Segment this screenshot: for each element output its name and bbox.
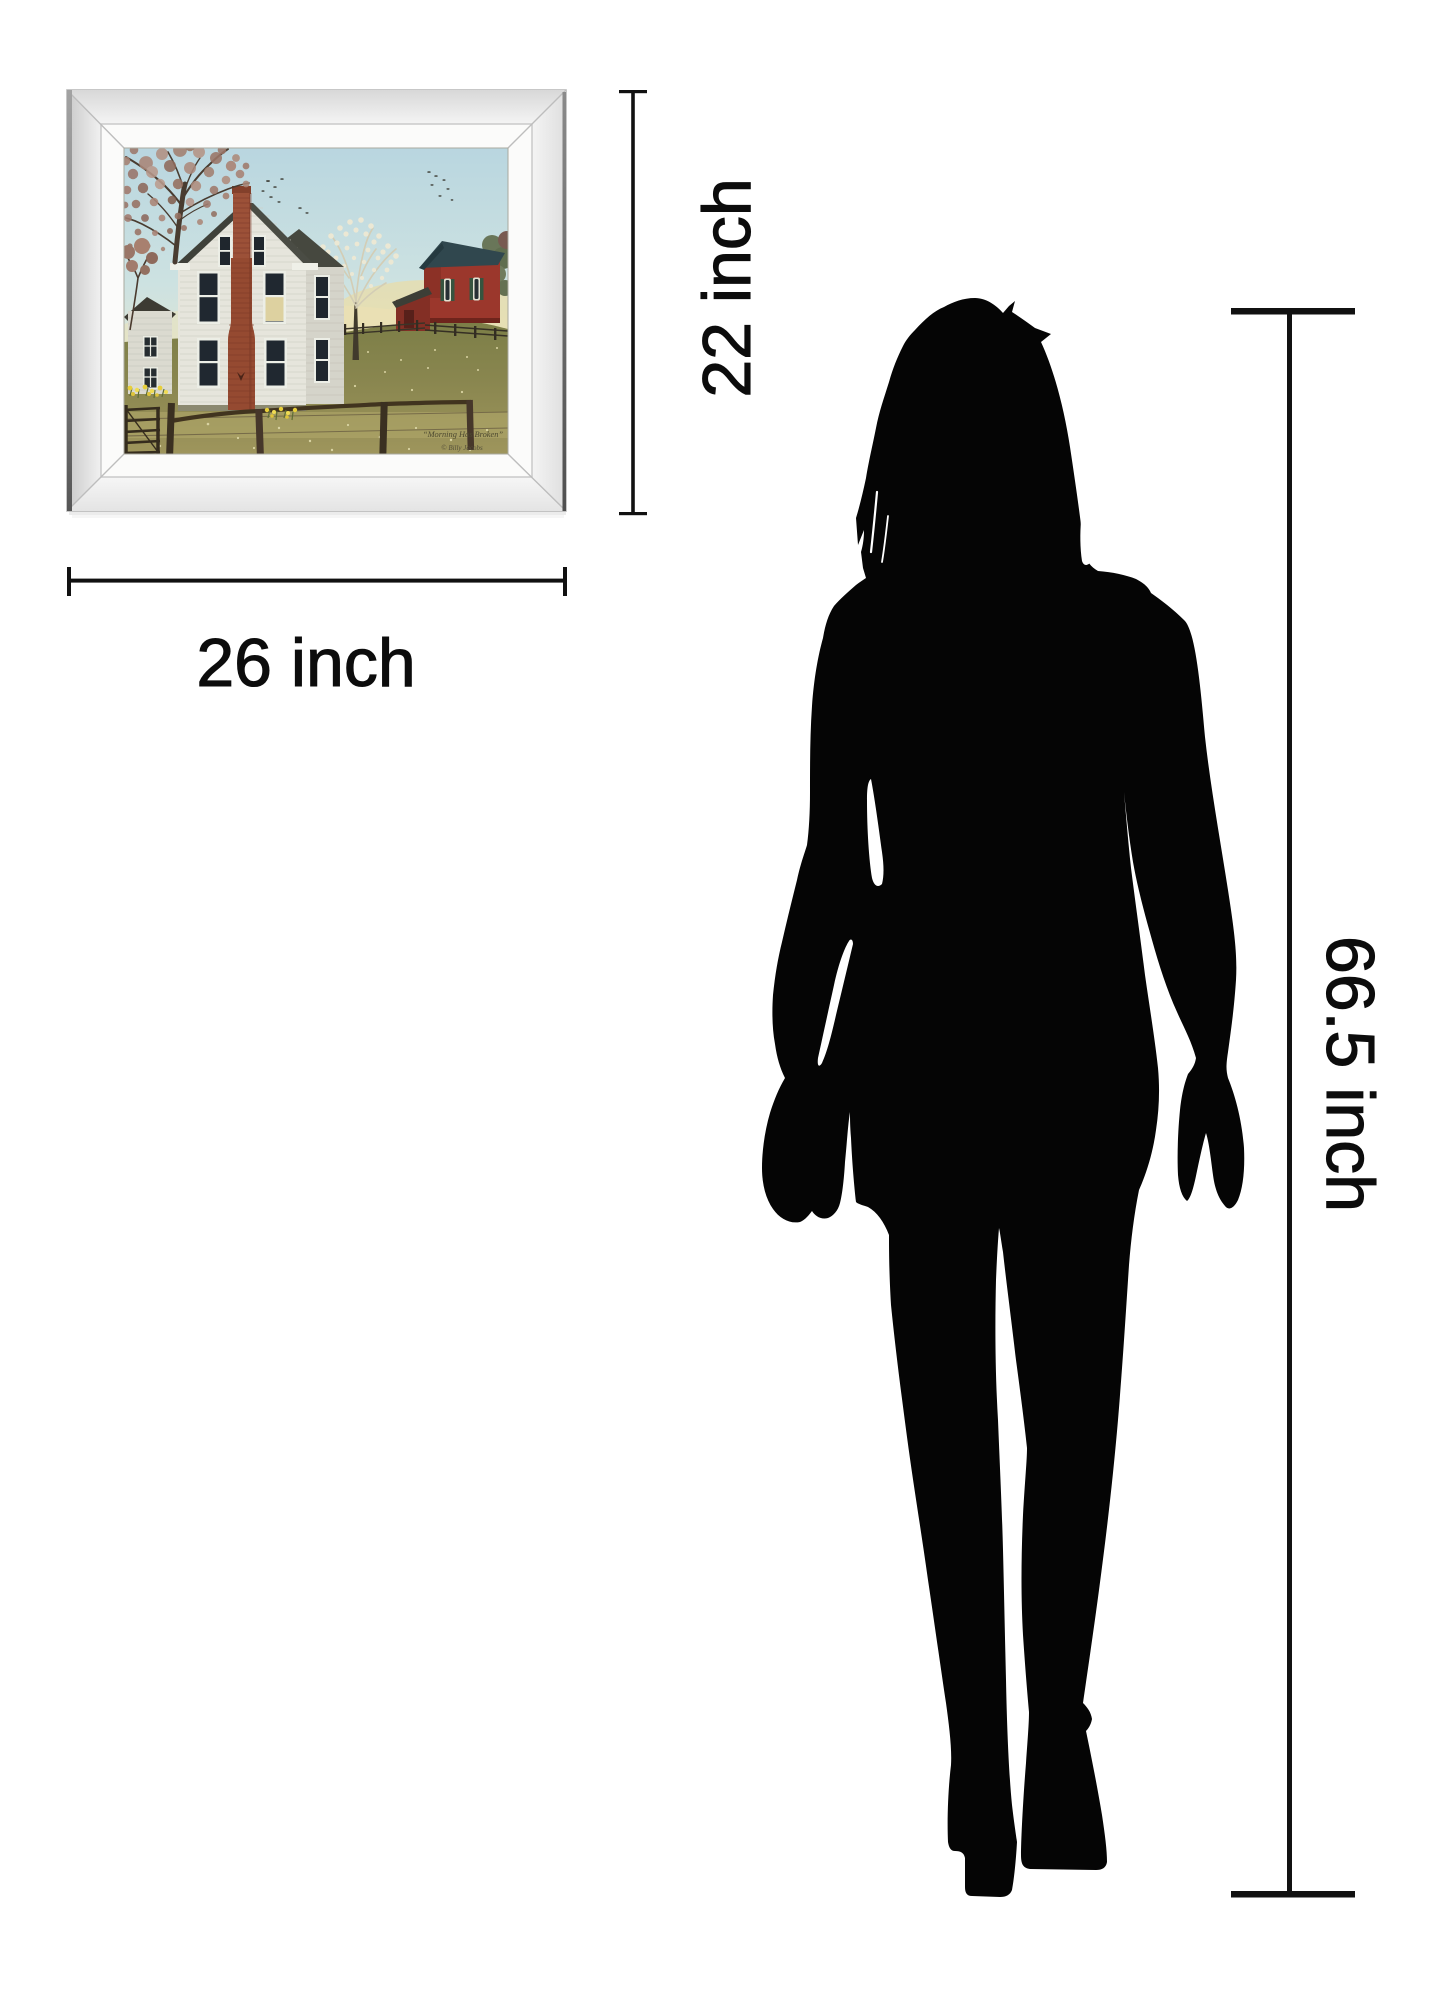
svg-text:66.5 inch: 66.5 inch [1312,936,1388,1212]
svg-text:22 inch: 22 inch [689,178,765,397]
svg-text:26 inch: 26 inch [196,625,415,701]
svg-text:“Morning Has Broken”: “Morning Has Broken” [423,430,504,439]
svg-text:© Billy Jacobs: © Billy Jacobs [441,444,483,452]
